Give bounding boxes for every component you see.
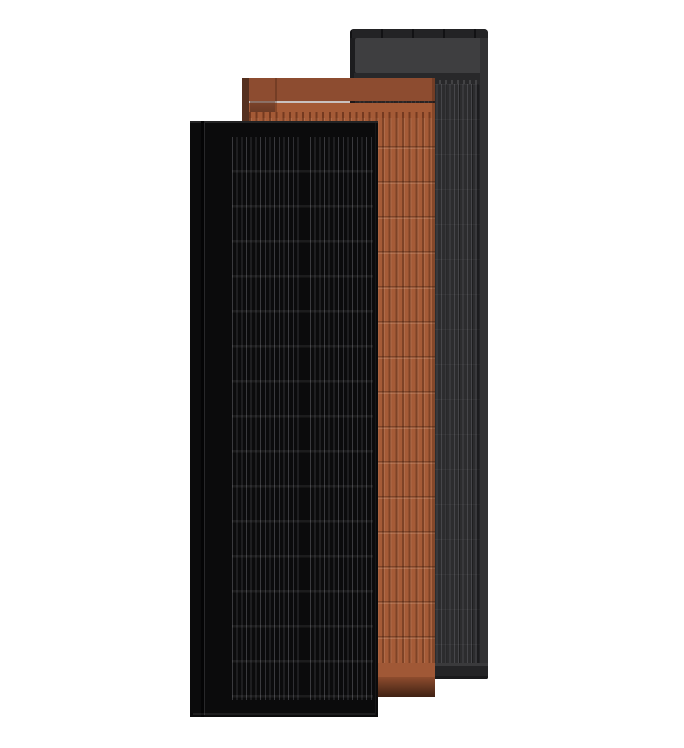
black-panel-bottom-bevel <box>193 713 375 715</box>
black-panel-top-bevel <box>190 121 378 123</box>
graphite-panel-right-frame <box>480 38 488 679</box>
terracotta-tile-right-edge <box>432 78 435 677</box>
black-panel-cell-area <box>232 137 373 700</box>
black-panel-right-bevel <box>375 123 376 715</box>
black-panel-left-flange-ridge <box>204 123 205 715</box>
graphite-panel-header-plate <box>355 38 483 73</box>
product-render-stage <box>0 0 684 748</box>
graphite-panel-top-bar <box>350 29 488 38</box>
black-solar-panel <box>190 121 378 717</box>
terracotta-tile-side-lock-seam <box>275 78 277 112</box>
black-panel-cell-divisions <box>232 170 373 700</box>
